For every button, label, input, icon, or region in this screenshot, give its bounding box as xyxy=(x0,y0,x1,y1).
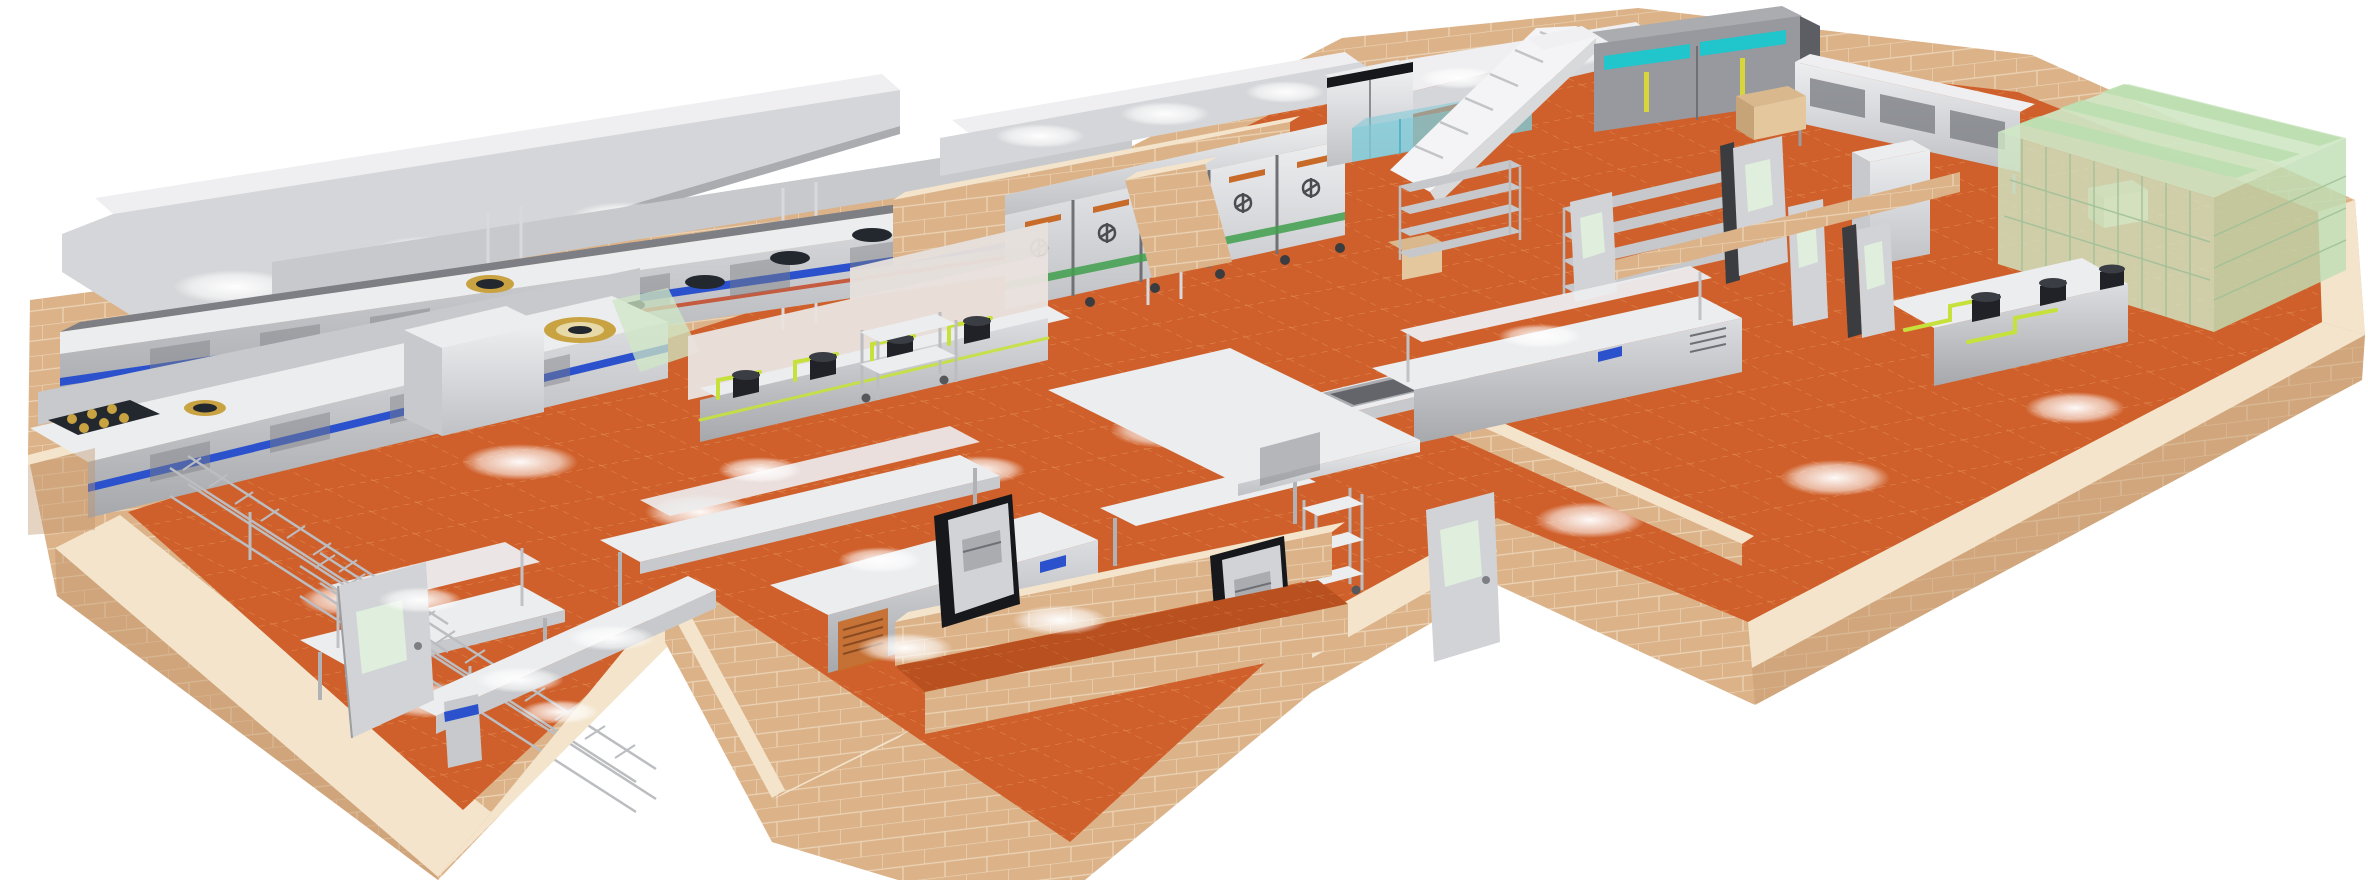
render-canvas xyxy=(0,0,2368,880)
kitchen-3d-render xyxy=(0,0,2368,880)
tall-cabinet-block xyxy=(404,306,544,436)
prep-room-door xyxy=(1426,492,1500,662)
dumbwaiter-1 xyxy=(934,494,1020,628)
